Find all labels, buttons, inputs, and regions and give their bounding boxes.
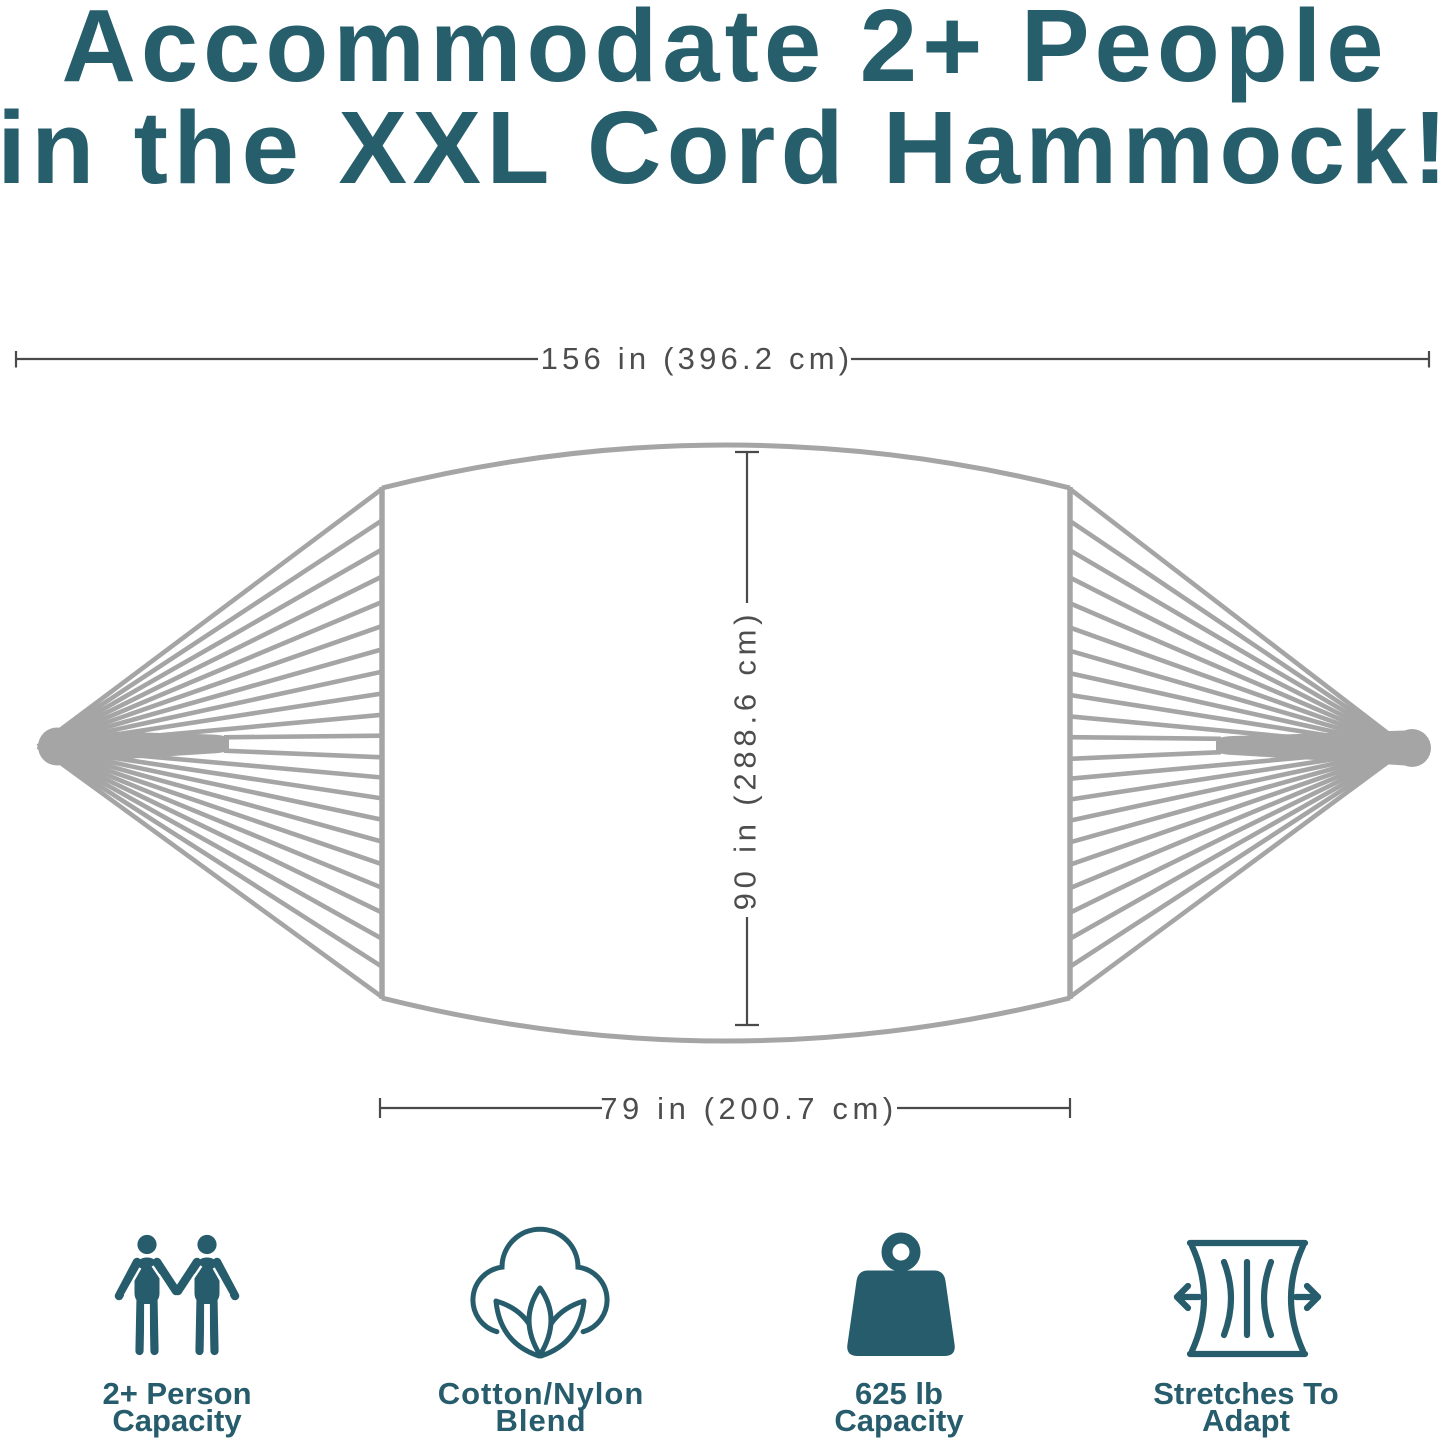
svg-text:in the XXL Cord Hammock!: in the XXL Cord Hammock! — [0, 90, 1445, 205]
svg-text:156 in (396.2 cm): 156 in (396.2 cm) — [541, 341, 854, 376]
svg-text:Capacity: Capacity — [112, 1403, 242, 1438]
svg-text:Blend: Blend — [495, 1403, 586, 1438]
svg-text:79 in (200.7 cm): 79 in (200.7 cm) — [600, 1091, 898, 1126]
svg-text:90 in (288.6 cm): 90 in (288.6 cm) — [728, 610, 763, 911]
svg-text:Accommodate 2+ People: Accommodate 2+ People — [61, 0, 1388, 103]
svg-text:Adapt: Adapt — [1202, 1403, 1290, 1438]
svg-text:Capacity: Capacity — [834, 1403, 964, 1438]
